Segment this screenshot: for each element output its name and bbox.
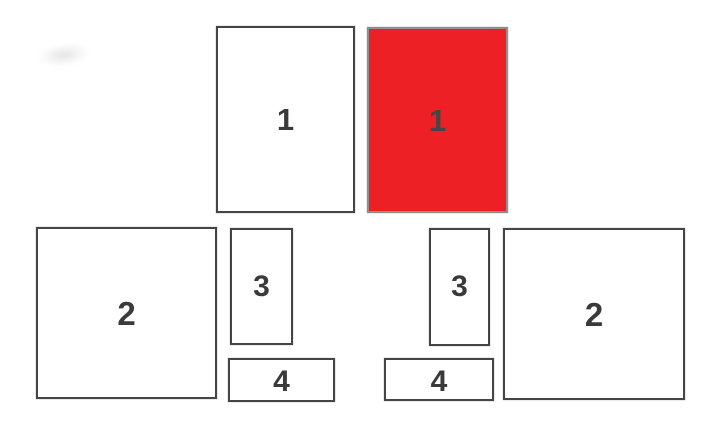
panel-label: 4 xyxy=(273,363,290,397)
panel-3-right[interactable]: 3 xyxy=(429,228,490,346)
panel-4-left[interactable]: 4 xyxy=(228,358,335,402)
scan-smudge-artifact xyxy=(37,40,92,69)
panel-label: 1 xyxy=(277,104,294,135)
panel-3-left[interactable]: 3 xyxy=(230,228,293,345)
panel-label: 2 xyxy=(585,298,603,331)
panel-1-highlighted[interactable]: 1 xyxy=(367,27,508,213)
panel-2-left[interactable]: 2 xyxy=(36,227,217,399)
panel-label: 2 xyxy=(117,297,135,330)
diagram-canvas: 1 1 2 3 4 3 4 2 xyxy=(0,0,728,431)
panel-4-right[interactable]: 4 xyxy=(384,358,494,401)
panel-label: 1 xyxy=(429,105,446,136)
panel-label: 4 xyxy=(431,363,448,397)
panel-1-plain[interactable]: 1 xyxy=(216,26,355,213)
panel-2-right[interactable]: 2 xyxy=(503,228,685,400)
panel-label: 3 xyxy=(451,272,468,302)
panel-label: 3 xyxy=(253,272,270,302)
